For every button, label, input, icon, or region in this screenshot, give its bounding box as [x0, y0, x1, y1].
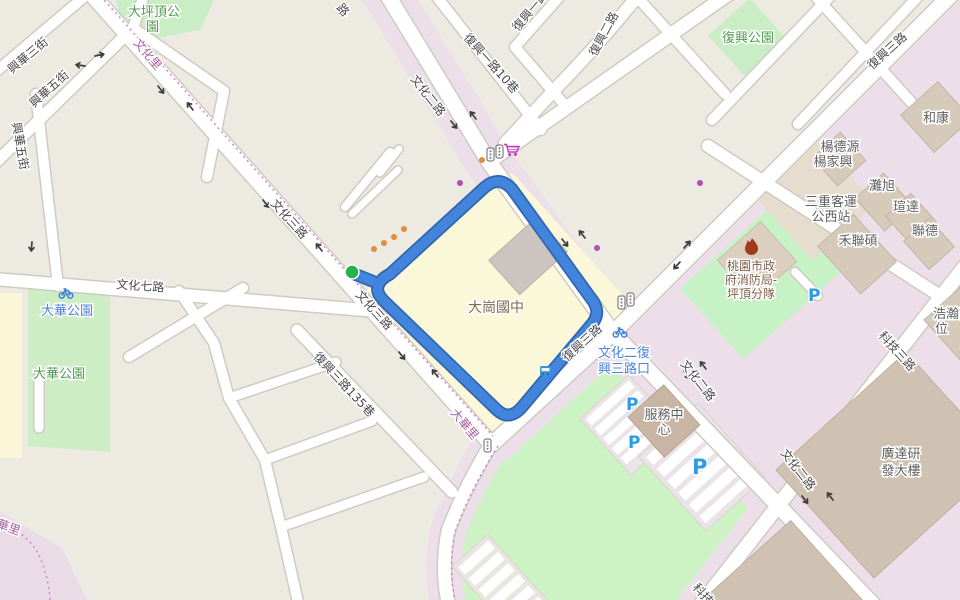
map-canvas[interactable]: 大坪頂公 園 興華三街 興華五街 興華五街 文化里 路 文化二路 復興一路10巷…: [0, 0, 960, 600]
parking-icon: P: [626, 395, 638, 415]
fire-station-label-3: 坪頂分隊: [727, 286, 775, 301]
yang-label: 楊德源: [820, 139, 859, 155]
xuanda-label: 瑄達: [893, 200, 919, 215]
sanchong-bus-label: 三重客運: [805, 194, 857, 210]
yang-label-2: 楊家興: [813, 154, 852, 170]
daping-park-label-2: 園: [146, 20, 159, 35]
fire-station-label: 桃園市政: [727, 258, 775, 273]
quanta-label-2: 發大樓: [881, 464, 920, 479]
youbike-station-label-2: 興三路口: [598, 361, 650, 377]
daping-park-label: 大坪頂公: [128, 5, 180, 20]
orange-poi-dot: [479, 157, 485, 163]
service-center-label-2: 心: [657, 423, 670, 438]
haohan-label-2: 位: [935, 322, 948, 337]
parking-icon: P: [692, 455, 707, 479]
map-svg: 大坪頂公 園 興華三街 興華五街 興華五街 文化里 路 文化二路 復興一路10巷…: [0, 0, 960, 600]
tanxu-label: 灘旭: [869, 179, 895, 194]
purple-poi-dot: [594, 245, 600, 251]
dahua-park-label: 大華公園: [33, 367, 85, 382]
traffic-light-icon: [496, 145, 503, 158]
hekang-label: 和康: [923, 110, 949, 126]
traffic-light-icon: [484, 439, 491, 452]
orange-poi-dot: [381, 240, 387, 246]
parking-icon: P: [628, 433, 640, 453]
service-center-label: 服務中: [644, 408, 683, 423]
fire-station-label-2: 府消防局-: [725, 272, 777, 287]
dagang-school-label: 大崗國中: [468, 300, 524, 316]
traffic-light-icon: [627, 293, 634, 306]
purple-poi-dot: [697, 180, 703, 186]
yellow-strip: [0, 293, 22, 458]
orange-poi-dot: [371, 246, 377, 252]
liande-label: 聯德: [912, 224, 938, 239]
haohan-label: 浩瀚數: [933, 307, 960, 322]
purple-poi-dot: [457, 180, 463, 186]
orange-poi-dot: [391, 234, 397, 240]
fuxing-park-label: 復興公園: [722, 30, 774, 46]
bus-stop-icon: [540, 366, 551, 376]
quanta-label: 廣達研: [881, 447, 920, 462]
dahua-park-youbike-label: 大華公園: [41, 304, 93, 319]
youbike-station-label: 文化二復: [598, 345, 650, 361]
traffic-light-icon: [618, 296, 625, 309]
traffic-light-icon: [487, 148, 494, 161]
route-start-marker[interactable]: [345, 265, 359, 279]
orange-poi-dot: [401, 226, 407, 232]
parking-icon: P: [808, 286, 820, 306]
helianshuo-label: 禾聯碩: [838, 234, 877, 249]
sanchong-bus-label-2: 公西站: [811, 210, 850, 225]
